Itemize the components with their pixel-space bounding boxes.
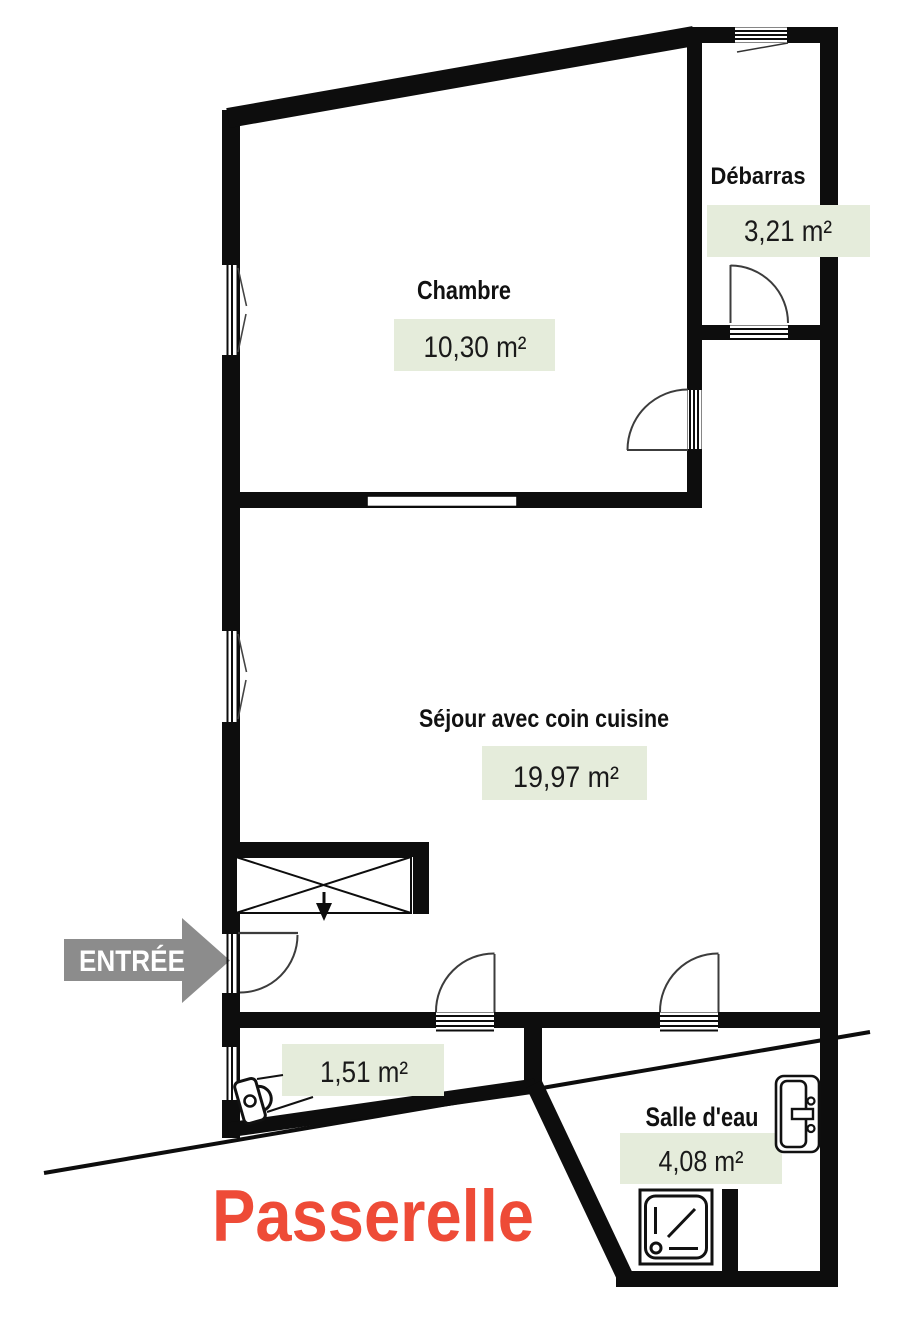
svg-text:1,51 m²: 1,51 m² bbox=[320, 1056, 408, 1089]
svg-text:10,30 m²: 10,30 m² bbox=[424, 331, 527, 364]
svg-text:Séjour avec coin cuisine: Séjour avec coin cuisine bbox=[419, 705, 669, 733]
svg-text:ENTRÉE: ENTRÉE bbox=[79, 944, 185, 978]
svg-text:19,97 m²: 19,97 m² bbox=[513, 761, 619, 794]
svg-text:Chambre: Chambre bbox=[417, 275, 511, 305]
svg-text:Salle d'eau: Salle d'eau bbox=[646, 1102, 759, 1132]
svg-text:3,21 m²: 3,21 m² bbox=[744, 215, 832, 248]
svg-text:Débarras: Débarras bbox=[711, 163, 806, 190]
svg-text:Passerelle: Passerelle bbox=[212, 1176, 534, 1257]
svg-text:4,08 m²: 4,08 m² bbox=[659, 1146, 744, 1178]
